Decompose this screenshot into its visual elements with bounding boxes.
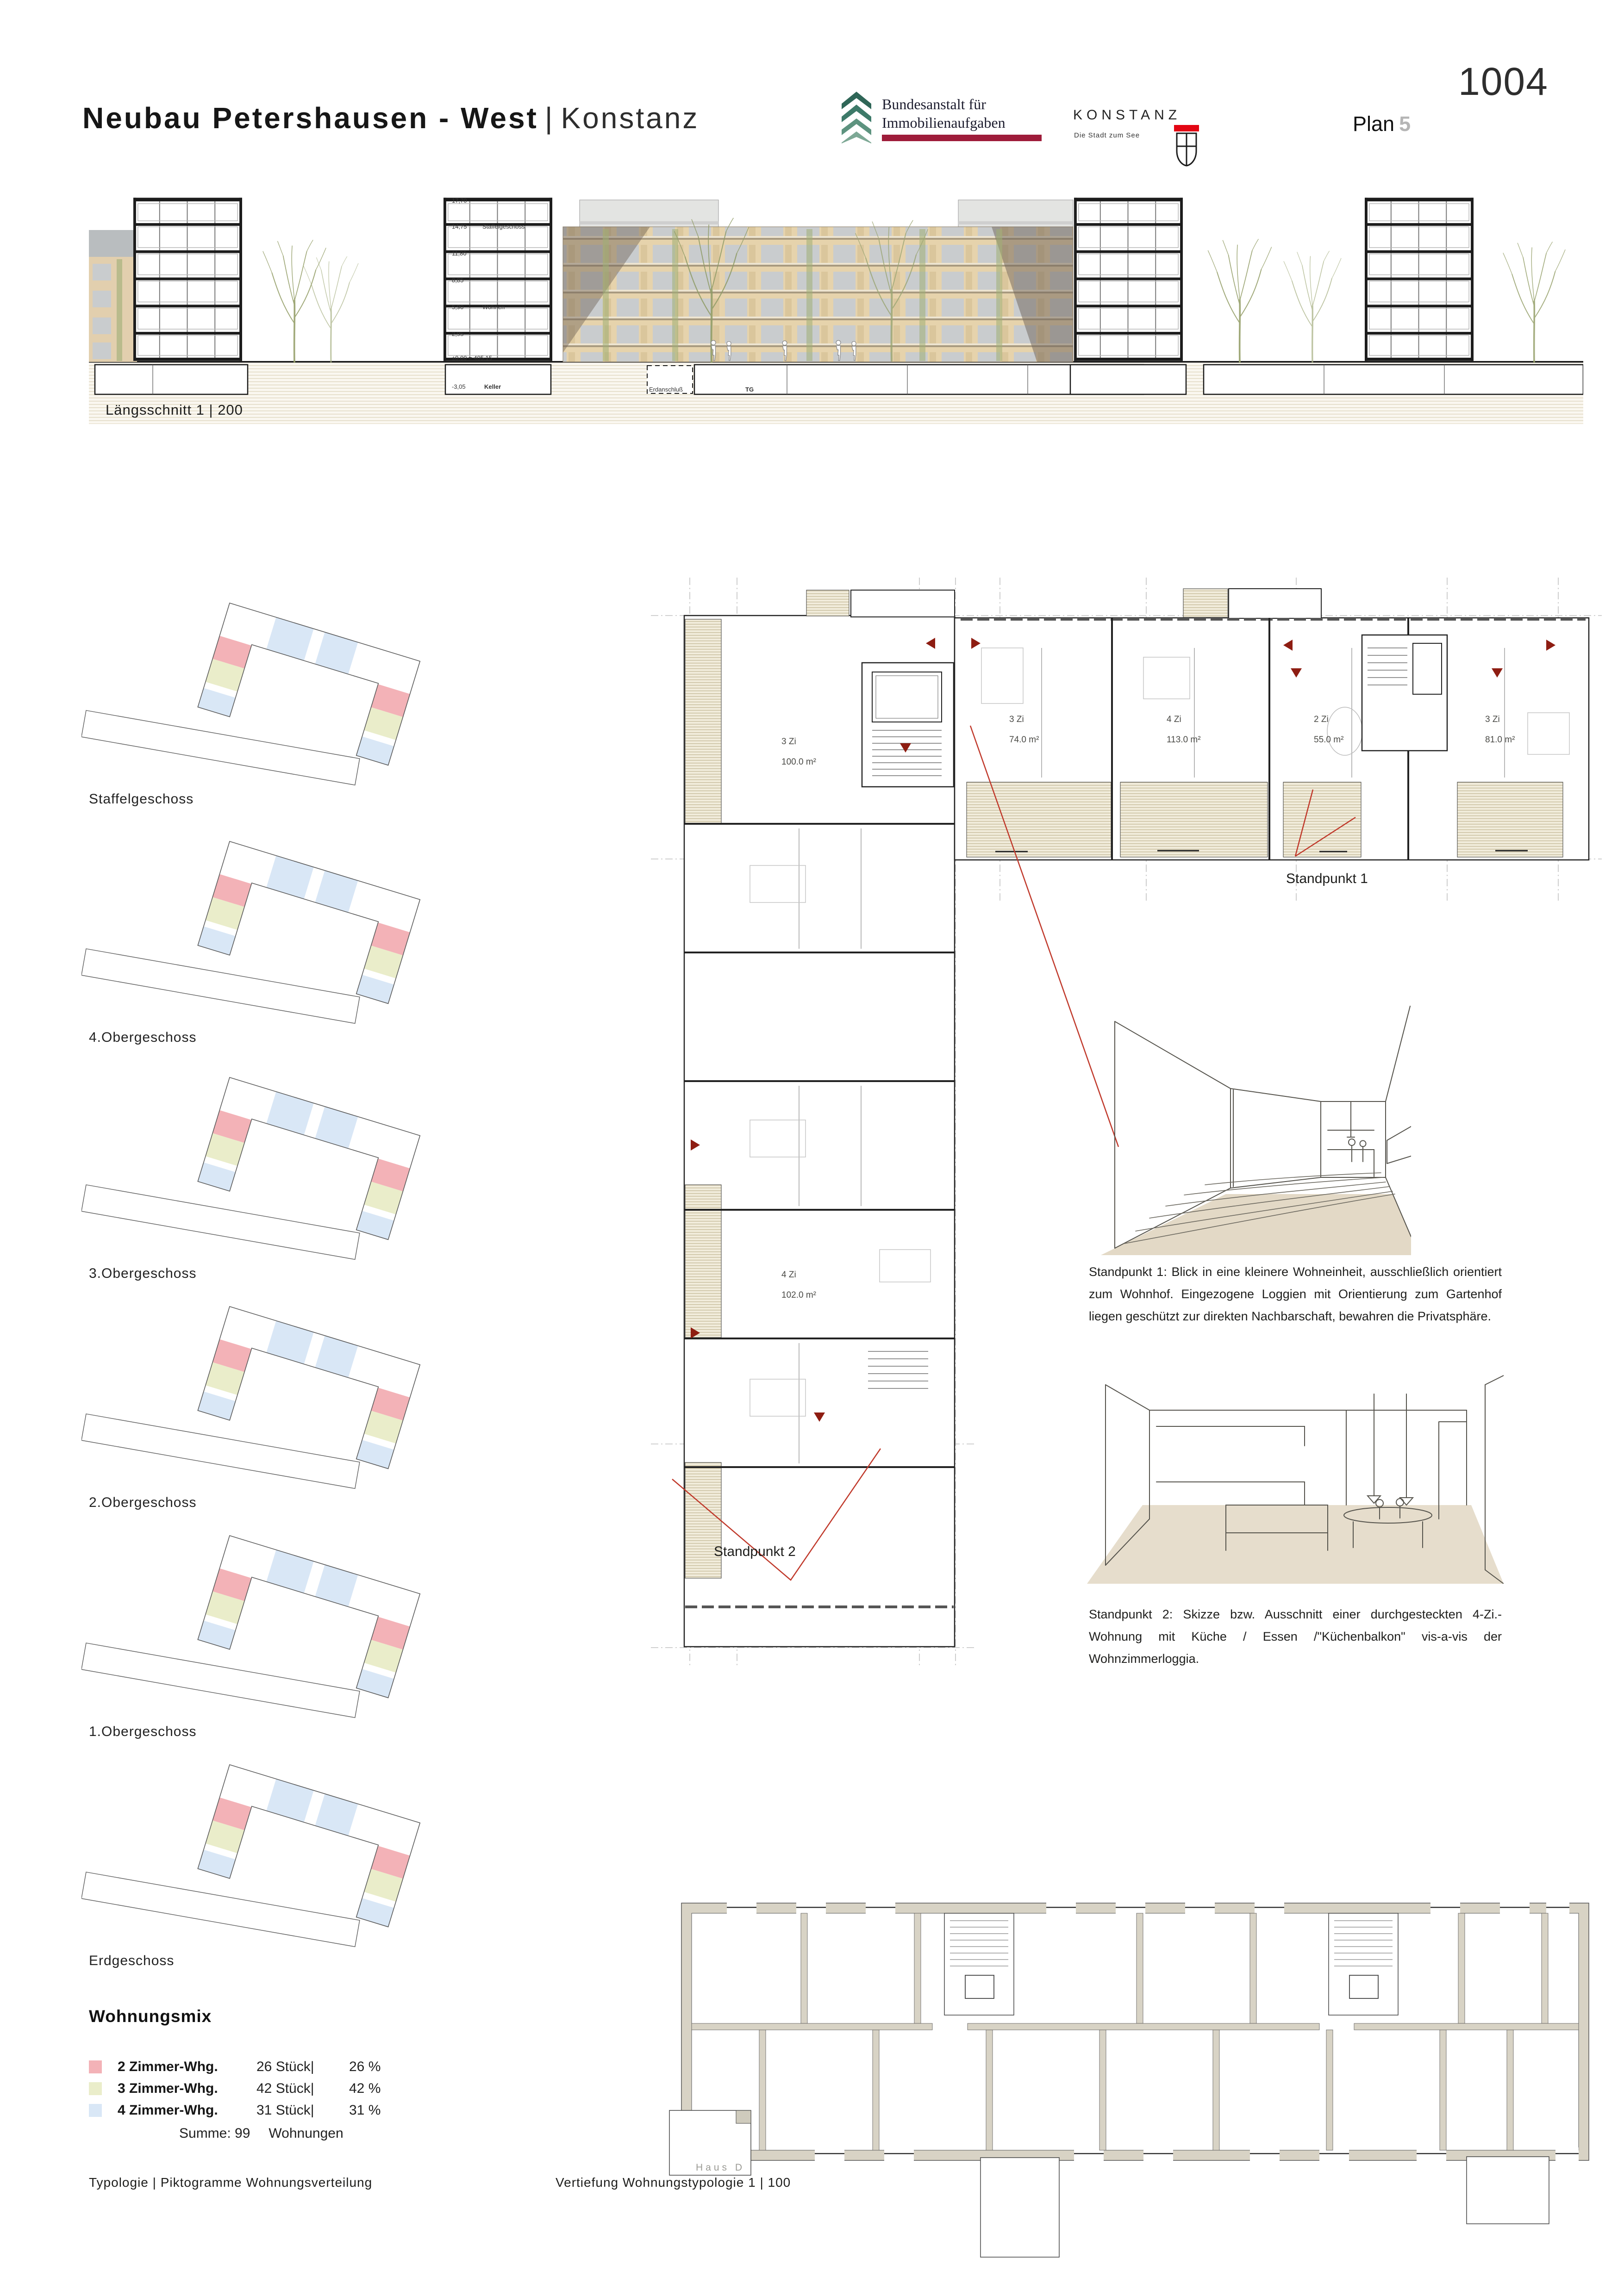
- floor-pictogram-3og: 3.Obergeschoss: [81, 1074, 526, 1291]
- standpunkt2-caption: Standpunkt 2: Skizze bzw. Ausschnitt ein…: [1089, 1603, 1502, 1670]
- bima-line1: Bundesanstalt für: [882, 95, 1006, 113]
- svg-text:74.0 m²: 74.0 m²: [1009, 735, 1039, 745]
- plan-number: Plan5: [1353, 112, 1411, 136]
- floor-label: Erdgeschoss: [89, 1953, 174, 1969]
- standpunkt2-label: Standpunkt 2: [714, 1544, 796, 1559]
- svg-text:Erdanschluß: Erdanschluß: [649, 386, 683, 393]
- page-title: Neubau Petershausen - West|Konstanz: [82, 101, 699, 135]
- pictogram-drawing: [81, 838, 526, 1025]
- wohnungsmix-title: Wohnungsmix: [89, 2007, 441, 2026]
- svg-text:Staffelgeschoss: Staffelgeschoss: [482, 223, 525, 230]
- floor-label: 1.Obergeschoss: [89, 1724, 196, 1740]
- mix-sum-label: Summe: 99: [179, 2126, 250, 2141]
- bima-logo-bar: [882, 135, 1042, 141]
- haus-d-label: Haus D: [696, 2162, 745, 2173]
- mix-row-3zi: 3 Zimmer-Whg. 42 Stück| 42 %: [89, 2078, 441, 2099]
- svg-text:4 Zi: 4 Zi: [1167, 715, 1181, 724]
- floor-pictogram-1og: 1.Obergeschoss: [81, 1532, 526, 1749]
- mix-percent: 31 %: [349, 2103, 405, 2118]
- mix-chip-2zi: [89, 2060, 102, 2073]
- pictogram-drawing: [81, 1532, 526, 1719]
- competition-code: 1004: [1458, 59, 1549, 104]
- svg-text:11,80: 11,80: [452, 250, 467, 257]
- pictogram-drawing: [81, 599, 526, 787]
- svg-text:3 Zi: 3 Zi: [1485, 715, 1500, 724]
- svg-text:-3,05: -3,05: [452, 383, 466, 390]
- section-drawing: 17,70 14,75 Staffelgeschoss 11,80 8,85 5…: [89, 183, 1583, 442]
- svg-text:17,70: 17,70: [452, 197, 467, 204]
- title-separator: |: [538, 101, 561, 135]
- svg-text:8,85: 8,85: [452, 277, 463, 284]
- plan-board: Neubau Petershausen - West|Konstanz Bund…: [0, 0, 1624, 2296]
- pictogram-drawing: [81, 1074, 526, 1261]
- bima-line2: Immobilienaufgaben: [882, 113, 1006, 132]
- floor-pictogram-eg: Erdgeschoss: [81, 1761, 526, 1979]
- mix-chip-4zi: [89, 2104, 102, 2117]
- floor-label: 3.Obergeschoss: [89, 1266, 196, 1282]
- mix-count: 31 Stück|: [256, 2103, 349, 2118]
- section-scale-label: Längsschnitt 1 | 200: [106, 402, 243, 418]
- pictogram-drawing: [81, 1303, 526, 1490]
- title-city: Konstanz: [561, 101, 699, 135]
- standpunkt2-sketch: [1087, 1366, 1504, 1584]
- floor-pictogram-staffelgeschoss: Staffelgeschoss: [81, 599, 526, 817]
- footer-right-label: Vertiefung Wohnungstypologie 1 | 100: [556, 2175, 791, 2190]
- footer-left-label: Typologie | Piktogramme Wohnungsverteilu…: [89, 2175, 372, 2190]
- wohnungsmix-legend: Wohnungsmix 2 Zimmer-Whg. 26 Stück| 26 %…: [89, 2007, 441, 2141]
- svg-text:113.0 m²: 113.0 m²: [1167, 735, 1201, 745]
- mix-sum-unit: Wohnungen: [269, 2126, 343, 2141]
- mix-label: 4 Zimmer-Whg.: [118, 2103, 256, 2118]
- mix-label: 3 Zimmer-Whg.: [118, 2081, 256, 2097]
- svg-text:14,75: 14,75: [452, 223, 467, 230]
- mix-sum: Summe: 99Wohnungen: [179, 2126, 441, 2141]
- mix-count: 42 Stück|: [256, 2081, 349, 2097]
- floor-pictogram-2og: 2.Obergeschoss: [81, 1303, 526, 1520]
- svg-text:±0,00 = 405,15: ±0,00 = 405,15: [452, 355, 492, 361]
- svg-text:81.0 m²: 81.0 m²: [1485, 735, 1515, 745]
- floor-label: 4.Obergeschoss: [89, 1030, 196, 1045]
- floor-pictogram-4og: 4.Obergeschoss: [81, 838, 526, 1055]
- mix-chip-3zi: [89, 2082, 102, 2095]
- pictogram-drawing: [81, 1761, 526, 1948]
- mix-row-2zi: 2 Zimmer-Whg. 26 Stück| 26 %: [89, 2056, 441, 2078]
- mix-label: 2 Zimmer-Whg.: [118, 2059, 256, 2075]
- title-project: Neubau Petershausen - West: [82, 101, 538, 135]
- svg-text:3 Zi: 3 Zi: [781, 737, 796, 747]
- mix-row-4zi: 4 Zimmer-Whg. 31 Stück| 31 %: [89, 2099, 441, 2121]
- konstanz-tagline: Die Stadt zum See: [1074, 131, 1140, 139]
- svg-text:TG: TG: [745, 386, 754, 393]
- standpunkt1-label: Standpunkt 1: [1286, 871, 1368, 886]
- bima-logo-text: Bundesanstalt für Immobilienaufgaben: [882, 95, 1006, 132]
- bima-logo-icon: [836, 92, 877, 143]
- konstanz-wordmark: KONSTANZ: [1073, 107, 1181, 123]
- svg-text:2 Zi: 2 Zi: [1314, 715, 1329, 724]
- svg-text:55.0 m²: 55.0 m²: [1314, 735, 1343, 745]
- konstanz-crest-icon: [1173, 124, 1200, 167]
- floor-label: Staffelgeschoss: [89, 791, 194, 807]
- svg-text:102.0 m²: 102.0 m²: [781, 1290, 816, 1300]
- plan-number-value: 5: [1394, 112, 1411, 136]
- svg-text:2,95: 2,95: [452, 330, 463, 337]
- plan-word: Plan: [1353, 112, 1394, 136]
- haus-d-floor-plan: [667, 1888, 1597, 2263]
- standpunkt1-caption: Standpunkt 1: Blick in eine kleinere Woh…: [1089, 1261, 1502, 1327]
- svg-text:3 Zi: 3 Zi: [1009, 715, 1024, 724]
- floor-label: 2.Obergeschoss: [89, 1495, 196, 1511]
- mix-percent: 26 %: [349, 2059, 405, 2075]
- mix-percent: 42 %: [349, 2081, 405, 2097]
- svg-text:Keller: Keller: [484, 383, 501, 390]
- svg-text:Wohnen: Wohnen: [482, 304, 505, 311]
- svg-text:4 Zi: 4 Zi: [781, 1270, 796, 1280]
- standpunkt1-sketch: [1087, 977, 1411, 1255]
- mix-count: 26 Stück|: [256, 2059, 349, 2075]
- svg-text:100.0 m²: 100.0 m²: [781, 757, 816, 767]
- svg-text:5,90: 5,90: [452, 304, 463, 311]
